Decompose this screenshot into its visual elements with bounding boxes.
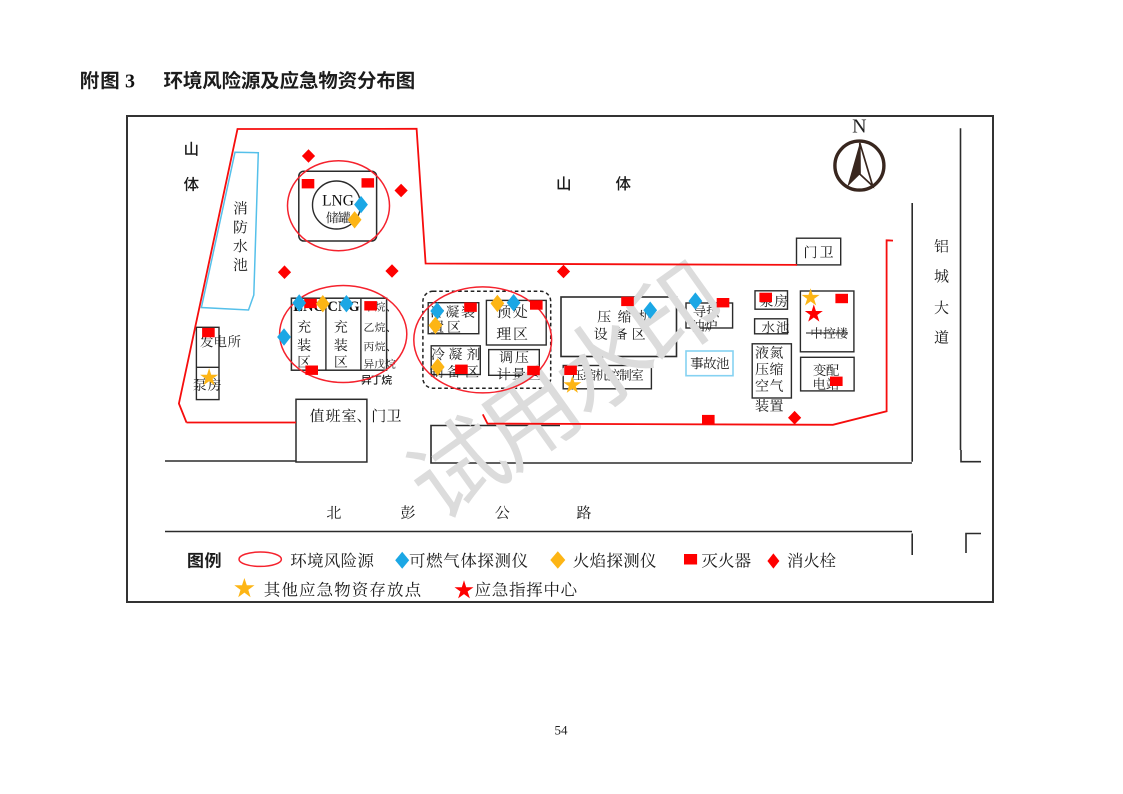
svg-text:54: 54 (555, 723, 569, 738)
svg-text:N: N (852, 115, 866, 137)
svg-text:3: 3 (125, 71, 135, 93)
svg-text:LNG: LNG (322, 193, 354, 210)
